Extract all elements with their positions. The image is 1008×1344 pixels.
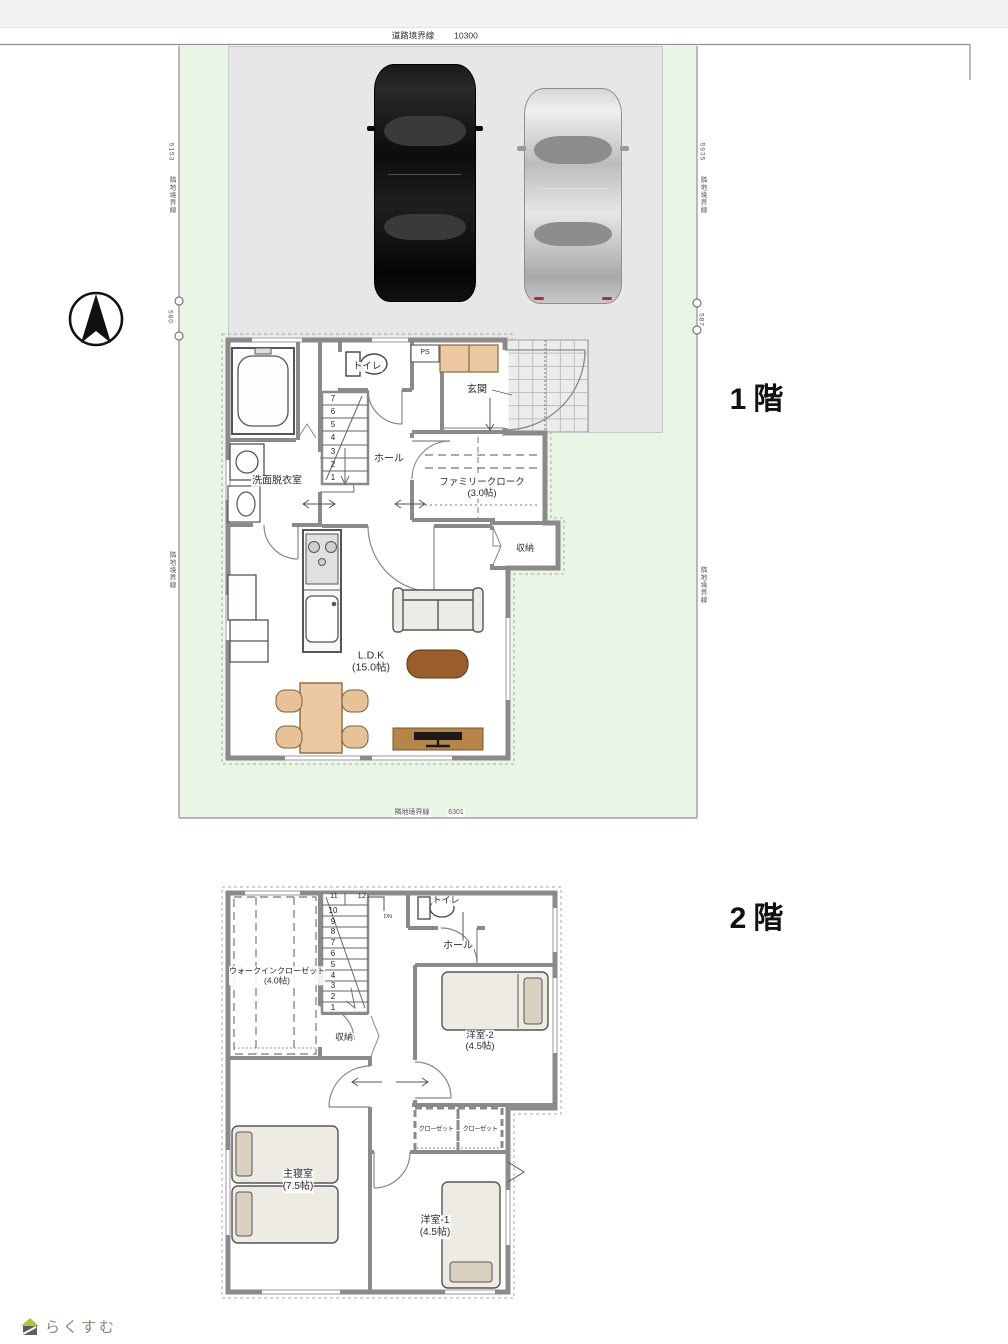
wic-name: ウォークインクローゼット (229, 966, 325, 975)
right-boundary-label-low: 隣地境界線 (697, 566, 707, 604)
room-label-ldk: L.D.K (15.0帖) (352, 650, 390, 675)
logo-text: らくすむ (45, 1316, 117, 1337)
right-boundary-dim-mid: 587 (698, 313, 705, 327)
family-cloak-name: ファミリークローク (439, 477, 525, 488)
stair-number: 2 (322, 458, 344, 471)
stairs-dn-label: DN (383, 914, 393, 920)
bed-west-room2 (442, 972, 548, 1030)
floor1-title: 1階 (730, 374, 791, 418)
stair-number: 4 (322, 970, 344, 981)
car-taillight-left (534, 297, 544, 300)
stair-number: 9 (322, 916, 344, 927)
stair-number: 10 (322, 905, 344, 916)
room-label-west-room2: 洋室-2 (4.5帖) (465, 1030, 494, 1052)
stair-numbers-1f: 7654321 (322, 392, 344, 484)
west-room2-size: (4.5帖) (465, 1041, 494, 1052)
room-label-west-room1: 洋室-1 (4.5帖) (420, 1215, 451, 1239)
room-label-master: 主寝室 (7.5帖) (283, 1169, 314, 1193)
west-room2-name: 洋室-2 (465, 1030, 494, 1041)
car-windshield (384, 116, 466, 146)
car-mirror-right (474, 126, 483, 131)
west-room1-name: 洋室-1 (420, 1215, 451, 1227)
right-boundary-dim-top: 5935 (699, 143, 706, 161)
room-label-wic: ウォークインクローゼット (4.0帖) (229, 966, 325, 985)
bottom-boundary-label: 隣地境界線 (394, 809, 431, 817)
parking-area-extension (588, 340, 663, 433)
stair-number: 1 (322, 471, 344, 484)
car-taillight-right (602, 297, 612, 300)
wic-size: (4.0帖) (229, 976, 325, 986)
ldk-size: (15.0帖) (352, 662, 390, 674)
car-rear-window (384, 214, 466, 240)
stair-number: 12 (358, 891, 366, 900)
stair-number: 6 (322, 948, 344, 959)
family-cloak-size: (3.0帖) (439, 488, 525, 499)
stair-number: 5 (322, 418, 344, 431)
stair-number: 4 (322, 431, 344, 444)
room-label-hall-1f: ホール (373, 454, 405, 465)
car-roof-line (388, 174, 461, 175)
stair-top-numbers-2f: 1112 (330, 891, 366, 900)
left-boundary-label-low: 隣地境界線 (166, 551, 176, 589)
room-label-toilet-2f: トイレ (431, 896, 460, 906)
room-label-storage-1f: 収納 (515, 544, 535, 554)
stair-number: 3 (322, 981, 344, 992)
right-boundary-label-top: 隣地境界線 (697, 176, 707, 214)
car-mirror-right (620, 146, 629, 151)
road-boundary-value: 10300 (453, 31, 479, 40)
floor2-title: 2階 (730, 893, 791, 937)
room-label-closet-b: クローゼット (462, 1127, 499, 1134)
room-label-washroom: 洗面脱衣室 (251, 476, 303, 487)
car-body (524, 88, 622, 304)
stair-number: 2 (322, 991, 344, 1002)
floorplan-page: 道路境界線 10300 隣地境界線 6301 5153 隣地境界線 580 隣地… (0, 0, 1008, 1344)
left-boundary-dim-mid: 580 (167, 310, 174, 324)
room-label-closet-a: クローゼット (418, 1127, 455, 1134)
left-boundary-dim-top: 5153 (168, 143, 175, 161)
stair-number: 7 (322, 392, 344, 405)
car-roof-line (538, 188, 609, 189)
master-size: (7.5帖) (283, 1181, 314, 1193)
logo-house-icon (20, 1317, 40, 1337)
windows-2f (225, 890, 558, 1295)
room-label-ps: PS (419, 349, 430, 357)
stair-number: 7 (322, 937, 344, 948)
stair-number: 6 (322, 405, 344, 418)
stair-numbers-2f: 10987654321 (322, 905, 344, 1013)
north-arrow-icon (70, 293, 122, 345)
room-label-family-cloak: ファミリークローク (3.0帖) (439, 477, 525, 499)
west-room1-size: (4.5帖) (420, 1227, 451, 1239)
room-label-toilet-1f: トイレ (352, 362, 383, 372)
room-label-entrance: 玄関 (466, 385, 488, 396)
stair-number: 3 (322, 445, 344, 458)
car-mirror-left (367, 126, 376, 131)
stair-number: 11 (330, 891, 338, 900)
car-silver-topview (524, 88, 622, 304)
master-name: 主寝室 (283, 1169, 314, 1181)
car-body (374, 64, 476, 302)
stair-number: 5 (322, 959, 344, 970)
left-boundary-label-top: 隣地境界線 (166, 176, 176, 214)
top-bar (0, 0, 1008, 28)
room-label-hall-2f: ホール (442, 941, 474, 952)
room-label-storage-2f: 収納 (334, 1033, 354, 1043)
stair-number: 8 (322, 927, 344, 938)
road-boundary-label: 道路境界線 (391, 31, 436, 40)
stair-number: 1 (322, 1002, 344, 1013)
car-black-topview (374, 64, 476, 302)
ldk-name: L.D.K (352, 650, 390, 662)
bottom-boundary-value: 6301 (447, 809, 465, 817)
car-rear-window (534, 222, 612, 246)
rakusumu-logo[interactable]: らくすむ (20, 1316, 117, 1337)
car-windshield (534, 136, 612, 164)
car-mirror-left (517, 146, 526, 151)
